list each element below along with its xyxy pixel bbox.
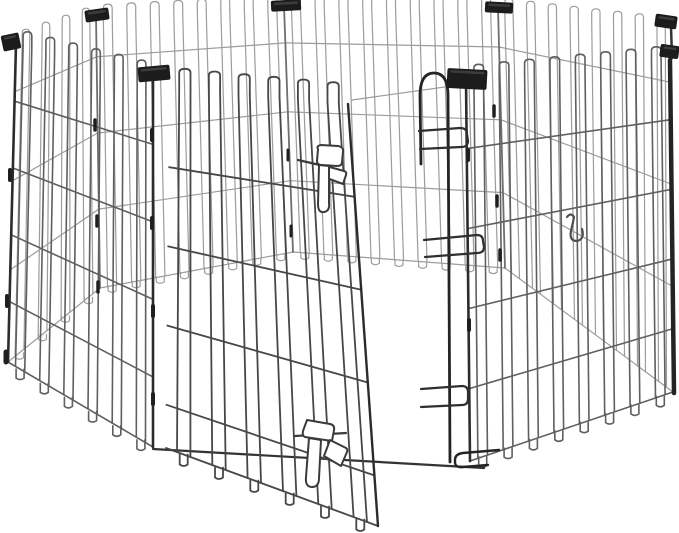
panel-rear-center-right [285,0,505,274]
clip-rear-left [84,7,109,22]
door-latch-lower [295,420,347,487]
product-photo-canvas [0,0,679,533]
clip-left-corner [1,32,22,51]
clip-front-left [137,65,170,83]
clip-right-rear [654,14,678,30]
panel-rear-center-left [97,0,293,292]
clip-rear-right [485,1,514,13]
clip-door-post [447,68,488,90]
hinge-wraps [6,106,500,404]
playpen-wire-pen-illustration [0,0,679,533]
clip-rear-center [271,0,302,12]
clip-right-corner [659,44,679,60]
